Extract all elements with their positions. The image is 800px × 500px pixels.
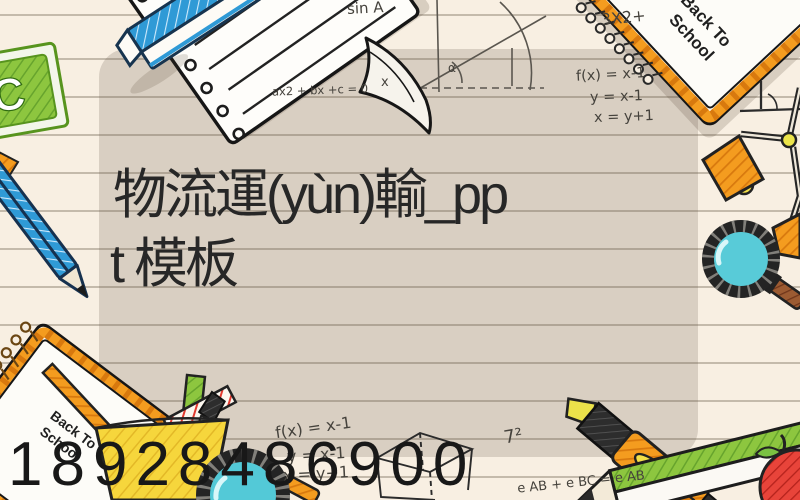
scribble-x-label: x bbox=[381, 76, 389, 89]
page-title-line1: 物流運(yùn)輸_pp bbox=[113, 168, 506, 222]
lamp-joint bbox=[782, 133, 796, 147]
letter-flashcard: C bbox=[0, 43, 69, 144]
scribble-coefficient: 3X2+ bbox=[600, 8, 646, 29]
page-title-line2: t 模板 bbox=[110, 237, 236, 291]
scribble-fx-1: f(x) = x-1 bbox=[576, 66, 646, 84]
scribble-fx-2: y = x-1 bbox=[590, 89, 643, 105]
scribble-angle-label: α bbox=[448, 62, 456, 74]
phone-number: 18928486900 bbox=[8, 434, 475, 496]
page-curl bbox=[360, 38, 430, 133]
lamp-shade bbox=[703, 136, 763, 200]
scribble-fx-3: x = y+1 bbox=[594, 109, 654, 126]
poster-canvas: C Back To School bbox=[0, 0, 800, 500]
scribble-seven-squared: 7² bbox=[503, 427, 525, 448]
blue-pencil bbox=[0, 109, 96, 304]
scribble-sin: sin A bbox=[347, 0, 384, 17]
